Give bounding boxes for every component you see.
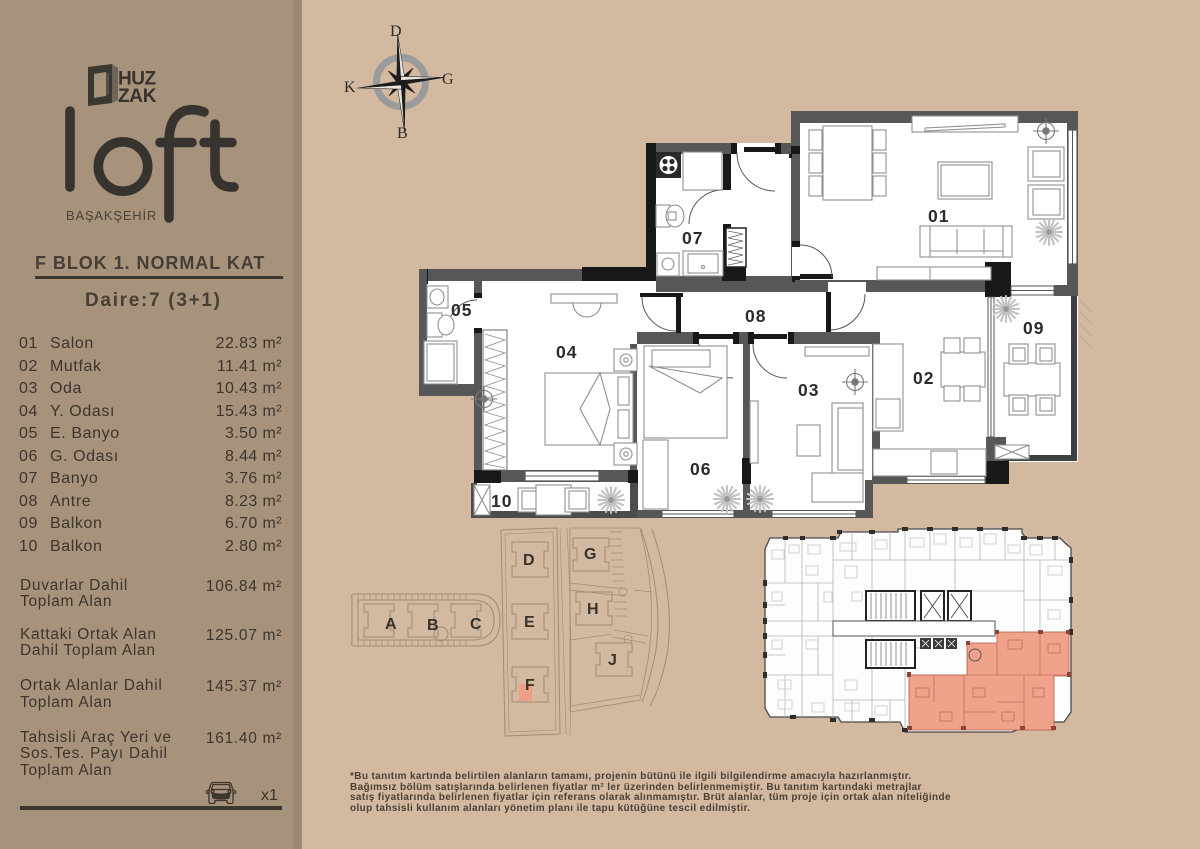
- svg-text:07: 07: [682, 228, 703, 248]
- svg-text:D: D: [523, 552, 535, 569]
- svg-text:02: 02: [913, 368, 934, 388]
- svg-text:10: 10: [491, 491, 512, 511]
- svg-text:G: G: [442, 71, 454, 88]
- svg-text:08: 08: [745, 306, 766, 326]
- svg-text:01: 01: [928, 206, 949, 226]
- svg-text:G: G: [584, 546, 596, 563]
- svg-text:C: C: [470, 616, 482, 633]
- svg-text:H: H: [587, 601, 599, 618]
- svg-text:06: 06: [690, 459, 711, 479]
- svg-text:E: E: [524, 614, 535, 631]
- svg-text:B: B: [427, 617, 439, 634]
- svg-text:03: 03: [798, 380, 819, 400]
- svg-text:K: K: [344, 79, 356, 96]
- svg-text:F: F: [525, 677, 535, 694]
- svg-text:D: D: [390, 23, 402, 40]
- svg-text:A: A: [385, 616, 397, 633]
- svg-text:09: 09: [1023, 318, 1044, 338]
- svg-text:B: B: [397, 125, 408, 142]
- svg-text:04: 04: [556, 342, 577, 362]
- svg-text:05: 05: [451, 300, 472, 320]
- svg-text:J: J: [608, 652, 617, 669]
